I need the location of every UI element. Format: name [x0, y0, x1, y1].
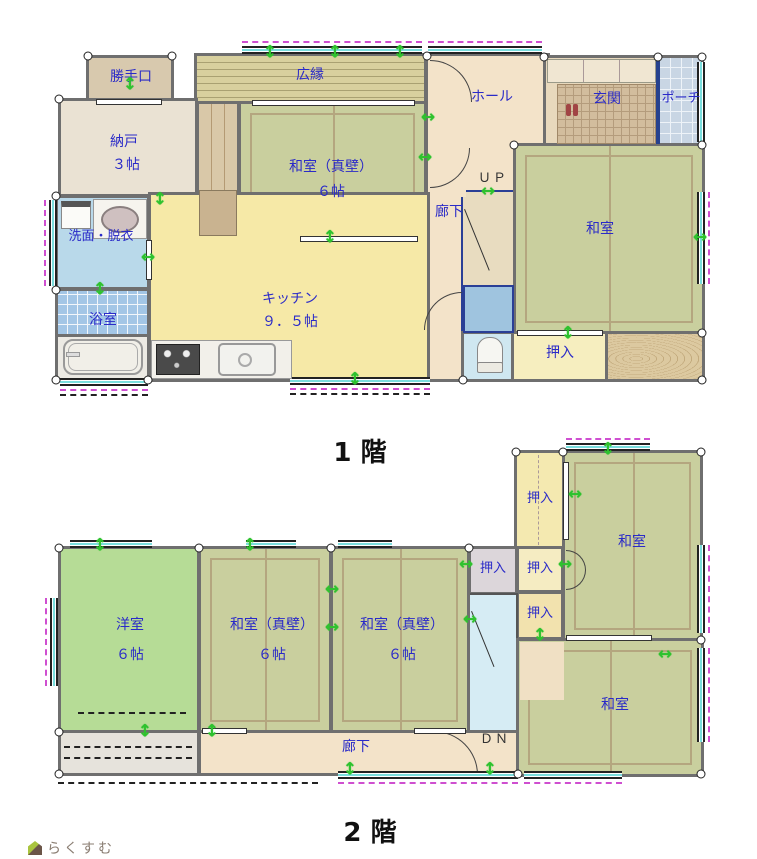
vent-arrow-icon: ↕	[393, 45, 407, 62]
wall-joint-icon	[512, 448, 521, 457]
wall-joint-icon	[510, 141, 519, 150]
vent-arrow-icon: ↕	[328, 45, 342, 62]
wall-joint-icon	[52, 192, 61, 201]
label-kitchen: キッチン	[262, 292, 318, 307]
bath-faucet-icon	[66, 352, 80, 357]
window	[60, 378, 148, 386]
window	[428, 46, 542, 54]
window	[338, 540, 392, 548]
shoes-icon	[566, 104, 571, 116]
vent-arrow-icon: ↕	[533, 628, 547, 645]
balcony-dash	[64, 746, 192, 748]
label-porch: ポーチ	[661, 92, 700, 106]
vent-arrow-icon: ↔	[658, 647, 672, 664]
balcony-dash	[64, 757, 192, 759]
window-dash	[338, 782, 518, 784]
room-washitsu-shinkabe-2f-1	[198, 546, 332, 734]
label-yokushitsu: 浴室	[89, 313, 117, 328]
balcony-strip	[58, 730, 200, 776]
vent-arrow-icon: ↔	[421, 110, 435, 127]
vent-arrow-icon: ↔	[481, 184, 495, 201]
label-nando: 納戸	[110, 135, 138, 150]
bathtub-inner	[68, 343, 138, 371]
wall-joint-icon	[698, 329, 707, 338]
wall-joint-icon	[459, 376, 468, 385]
label-genkan: 玄関	[593, 92, 621, 107]
vent-arrow-icon: ↔	[693, 230, 707, 247]
label-washitsu-2f-ne: 和室	[618, 535, 646, 550]
label-washitsu-2f-se: 和室	[601, 698, 629, 713]
vent-arrow-icon: ↕	[123, 77, 137, 94]
window	[50, 598, 58, 686]
sliding-door	[252, 100, 415, 106]
window-dash	[708, 545, 710, 633]
wall-joint-icon	[55, 728, 64, 737]
wall-joint-icon	[55, 95, 64, 104]
watermark-text: らくすむ	[47, 838, 115, 858]
vent-arrow-icon: ↔	[141, 250, 155, 267]
window-dash	[60, 389, 148, 391]
room-washitsu-1f	[513, 143, 705, 335]
label-washitsu-shinkabe-2f-2: 和室（真壁）	[360, 618, 444, 633]
wall-joint-icon	[84, 52, 93, 61]
house-logo-icon	[28, 841, 42, 855]
wall-joint-icon	[514, 770, 523, 779]
vent-arrow-icon: ↕	[348, 372, 362, 389]
sliding-door	[414, 728, 466, 734]
window	[697, 545, 705, 633]
wall-joint-icon	[327, 544, 336, 553]
sliding-door	[96, 99, 162, 105]
vent-arrow-icon: ↕	[483, 762, 497, 779]
stove-icon	[156, 344, 200, 375]
front-door-line	[656, 60, 660, 144]
sliding-door	[300, 236, 418, 242]
label-senmen: 洗面・脱衣	[68, 230, 133, 244]
vent-arrow-icon: ↔	[463, 612, 477, 629]
vent-arrow-icon: ↕	[243, 538, 257, 555]
label-oshiire-2f-north: 押入	[527, 492, 553, 506]
wall-joint-icon	[465, 544, 474, 553]
tokonoma-alcove	[605, 331, 705, 382]
vent-arrow-icon: ↕	[93, 282, 107, 299]
vent-arrow-icon: ↕	[205, 724, 219, 741]
label-hiroen: 広縁	[296, 68, 324, 83]
label-washitsu-shinkabe-2f-1-size: ６帖	[258, 648, 286, 663]
window-dash	[44, 200, 46, 286]
vent-arrow-icon: ↕	[601, 442, 615, 459]
label-washitsu-shinkabe-2f-2-size: ６帖	[388, 648, 416, 663]
label-washitsu-1f: 和室	[586, 222, 614, 237]
wall-joint-icon	[698, 141, 707, 150]
stairs-1f-lower-blue	[463, 285, 514, 333]
vent-arrow-icon: ↔	[558, 557, 572, 574]
window-dash	[45, 598, 47, 686]
vent-arrow-icon: ↕	[153, 192, 167, 209]
shoes-icon	[573, 104, 578, 116]
wall-joint-icon	[52, 376, 61, 385]
wall-joint-icon	[144, 376, 153, 385]
window	[524, 771, 622, 779]
label-hall: ホール	[471, 90, 513, 105]
label-kitchen-size: ９．５帖	[262, 315, 318, 330]
wall-joint-icon	[55, 770, 64, 779]
hall-corridor-opening	[430, 189, 466, 197]
room-washitsu-shinkabe-2f-2	[330, 546, 470, 734]
wall-joint-icon	[697, 636, 706, 645]
watermark: らくすむ	[28, 838, 115, 858]
window-dash	[708, 192, 710, 284]
wall-joint-icon	[168, 52, 177, 61]
toilet-tank-icon	[477, 362, 503, 373]
wood-strip-lower	[199, 190, 237, 236]
window-dash-black	[58, 782, 318, 784]
yoshitsu-closet-dash	[78, 712, 186, 714]
floor2-title: 2 階	[343, 812, 396, 849]
floor1-title: 1 階	[333, 432, 386, 469]
vent-arrow-icon: ↕	[138, 724, 152, 741]
label-washitsu-shinkabe-1f: 和室（真壁）	[289, 160, 373, 175]
label-dn: ＤＮ	[480, 733, 510, 747]
room-yoshitsu	[58, 546, 200, 734]
window-dash	[524, 782, 622, 784]
vent-arrow-icon: ↔	[459, 557, 473, 574]
vent-arrow-icon: ↔	[325, 620, 339, 637]
label-nando-size: ３帖	[112, 158, 140, 173]
washing-machine-icon	[61, 201, 91, 229]
window	[70, 540, 152, 548]
wall-joint-icon	[55, 544, 64, 553]
wall-joint-icon	[52, 286, 61, 295]
wall-joint-icon	[195, 544, 204, 553]
window	[49, 200, 57, 286]
label-yoshitsu-size: ６帖	[116, 648, 144, 663]
vent-arrow-icon: ↕	[561, 326, 575, 343]
label-washitsu-shinkabe-1f-size: ６帖	[317, 185, 345, 200]
label-yoshitsu: 洋室	[116, 618, 144, 633]
wall-joint-icon	[697, 448, 706, 457]
floor-plan-canvas: 勝手口 広縁 ホール 玄関 ポーチ 納戸 ３帖 和室（真壁） ６帖 廊下 ＵＰ …	[0, 0, 757, 859]
wall-joint-icon	[698, 376, 707, 385]
washitsu-se-entry-patch	[520, 642, 564, 700]
wall-joint-icon	[559, 448, 568, 457]
window-dash	[428, 41, 542, 43]
genkan-shoe-cabinet	[547, 59, 656, 83]
sliding-door	[566, 635, 652, 641]
window-dash-black	[290, 393, 430, 395]
window-dash-black	[60, 394, 148, 396]
wall-joint-icon	[423, 52, 432, 61]
vent-arrow-icon: ↔	[325, 582, 339, 599]
window-dash	[708, 648, 710, 742]
window	[697, 648, 705, 742]
label-oshiire-2f-south: 押入	[527, 607, 553, 621]
label-oshiire-1f: 押入	[546, 346, 574, 361]
vent-arrow-icon: ↕	[343, 762, 357, 779]
label-oshiire-2f-mid: 押入	[527, 562, 553, 576]
sink-drain-icon	[238, 353, 252, 367]
label-oshiire-2f-west: 押入	[480, 562, 506, 576]
label-roka-2f: 廊下	[342, 740, 370, 755]
label-roka-1f: 廊下	[435, 205, 463, 220]
label-washitsu-shinkabe-2f-1: 和室（真壁）	[230, 618, 314, 633]
vent-arrow-icon: ↔	[418, 150, 432, 167]
wall-joint-icon	[540, 53, 549, 62]
wall-joint-icon	[654, 53, 663, 62]
vent-arrow-icon: ↔	[568, 487, 582, 504]
wall-joint-icon	[698, 53, 707, 62]
vent-arrow-icon: ↕	[263, 45, 277, 62]
vent-arrow-icon: ↕	[93, 538, 107, 555]
vent-arrow-icon: ↕	[323, 230, 337, 247]
wall-joint-icon	[697, 770, 706, 779]
